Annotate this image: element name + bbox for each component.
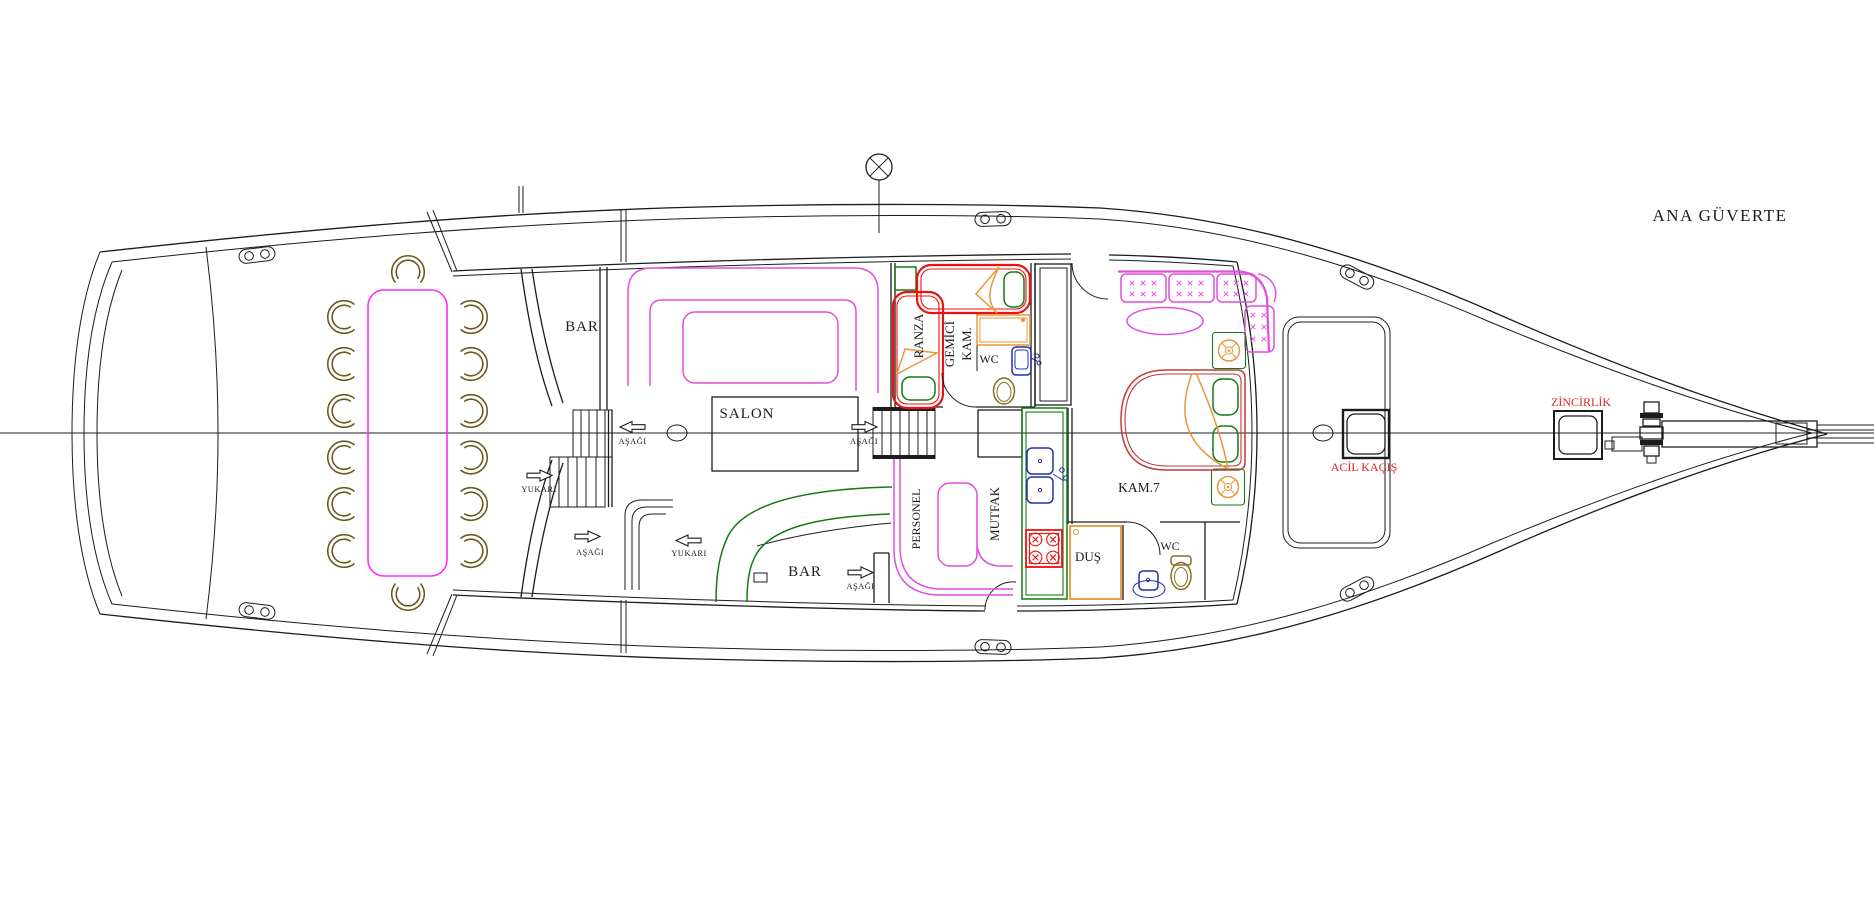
kam7-table <box>1127 308 1203 335</box>
kam7-label: KAM.7 <box>1118 480 1160 495</box>
mutfak-label: MUTFAK <box>987 486 1002 541</box>
deck-plan: SALON BAR RANZA GEMİCİ KAM. WC <box>0 0 1874 905</box>
ranza-label: RANZA <box>911 313 926 358</box>
down-arrow-icon <box>848 567 873 578</box>
asagi-label-2: AŞAĞI <box>850 436 878 446</box>
chain-locker-hatch: ZİNCİRLİK <box>1551 395 1611 459</box>
deck-plan-drawing: SALON BAR RANZA GEMİCİ KAM. WC <box>0 0 1874 905</box>
crew-wc-label: WC <box>979 352 998 366</box>
dus-label: DUŞ <box>1075 549 1101 564</box>
bar-upper-label: BAR <box>565 319 599 335</box>
deck-title: ANA GÜVERTE <box>1653 206 1788 225</box>
hull-outline <box>0 204 1874 661</box>
porthole-wheel-top <box>1213 333 1246 369</box>
salon-sofa <box>628 268 878 393</box>
asagi-label-1: AŞAĞI <box>619 436 647 446</box>
up-arrow-icon <box>676 535 701 546</box>
crew-door-arc <box>942 373 976 407</box>
acil-kacis-label: ACİL KAÇIŞ <box>1331 460 1398 474</box>
galley: MUTFAK <box>978 408 1068 610</box>
lower-wc-label: WC <box>1160 539 1179 553</box>
kam7-door-arc <box>1072 263 1108 299</box>
porthole-wheel-bottom <box>1212 469 1245 505</box>
stove-icon <box>1026 530 1062 567</box>
salon-label: SALON <box>719 406 774 422</box>
shower-room: DUŞ <box>1070 526 1121 599</box>
lower-wc: WC <box>1127 522 1191 598</box>
kam7-bed <box>1121 370 1245 470</box>
asagi-label-3: AŞAĞI <box>576 547 604 557</box>
wc-door-arc <box>1127 522 1160 555</box>
aft-stairs <box>550 410 612 507</box>
personel-label: PERSONEL <box>909 489 923 550</box>
asagi-label-4: AŞAĞI <box>847 581 875 591</box>
stair-arrows: AŞAĞI AŞAĞI YUKARI AŞAĞI YUKARI AŞAĞI <box>521 422 878 592</box>
gemici-kam-label-2: KAM. <box>959 327 974 361</box>
wardrobe-closet <box>1035 264 1071 405</box>
salon-table: SALON <box>712 397 858 471</box>
mast-symbol <box>866 154 892 233</box>
down-arrow-icon <box>620 422 645 433</box>
wc-toilet-icon <box>1171 563 1191 590</box>
zincirlik-label: ZİNCİRLİK <box>1551 395 1611 409</box>
gemici-kam-label-1: GEMİCİ <box>942 321 957 367</box>
emergency-escape-hatch: ACİL KAÇIŞ <box>1331 410 1398 474</box>
bar-lower-label: BAR <box>788 564 822 580</box>
bowsprit <box>1662 421 1874 447</box>
yukari-label-2: YUKARI <box>671 548 706 558</box>
down-arrow-icon <box>575 531 600 542</box>
yukari-label-1: YUKARI <box>521 484 556 494</box>
galley-door-arc <box>985 582 1016 610</box>
